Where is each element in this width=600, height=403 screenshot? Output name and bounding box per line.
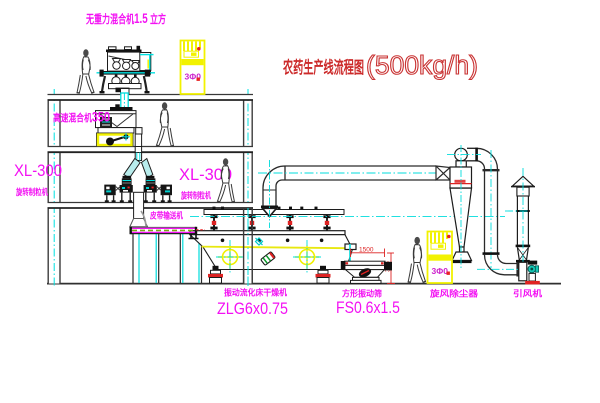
svg-text:XL-300: XL-300 <box>14 162 62 180</box>
svg-text:旋风除尘器: 旋风除尘器 <box>429 289 479 299</box>
svg-text:高速混合机350: 高速混合机350 <box>53 109 110 125</box>
svg-text:3Φ0: 3Φ0 <box>432 266 449 276</box>
svg-text:旋转制粒机: 旋转制粒机 <box>15 187 48 197</box>
svg-text:ZLG6x0.75: ZLG6x0.75 <box>217 299 288 318</box>
svg-text:无重力混合机1.5 立方: 无重力混合机1.5 立方 <box>85 10 166 26</box>
svg-text:方形振动筛: 方形振动筛 <box>342 289 382 299</box>
svg-text:旋转制粒机: 旋转制粒机 <box>180 191 211 201</box>
svg-text:振动流化床干燥机: 振动流化床干燥机 <box>224 288 287 298</box>
svg-text:皮带输送机: 皮带输送机 <box>149 211 183 221</box>
svg-text:FS0.6x1.5: FS0.6x1.5 <box>336 298 400 317</box>
svg-text:农药生产线流程图: 农药生产线流程图 <box>282 57 364 77</box>
svg-text:引风机: 引风机 <box>513 289 543 299</box>
svg-text:(500kg/h): (500kg/h) <box>366 52 478 80</box>
svg-text:1500: 1500 <box>359 247 374 254</box>
